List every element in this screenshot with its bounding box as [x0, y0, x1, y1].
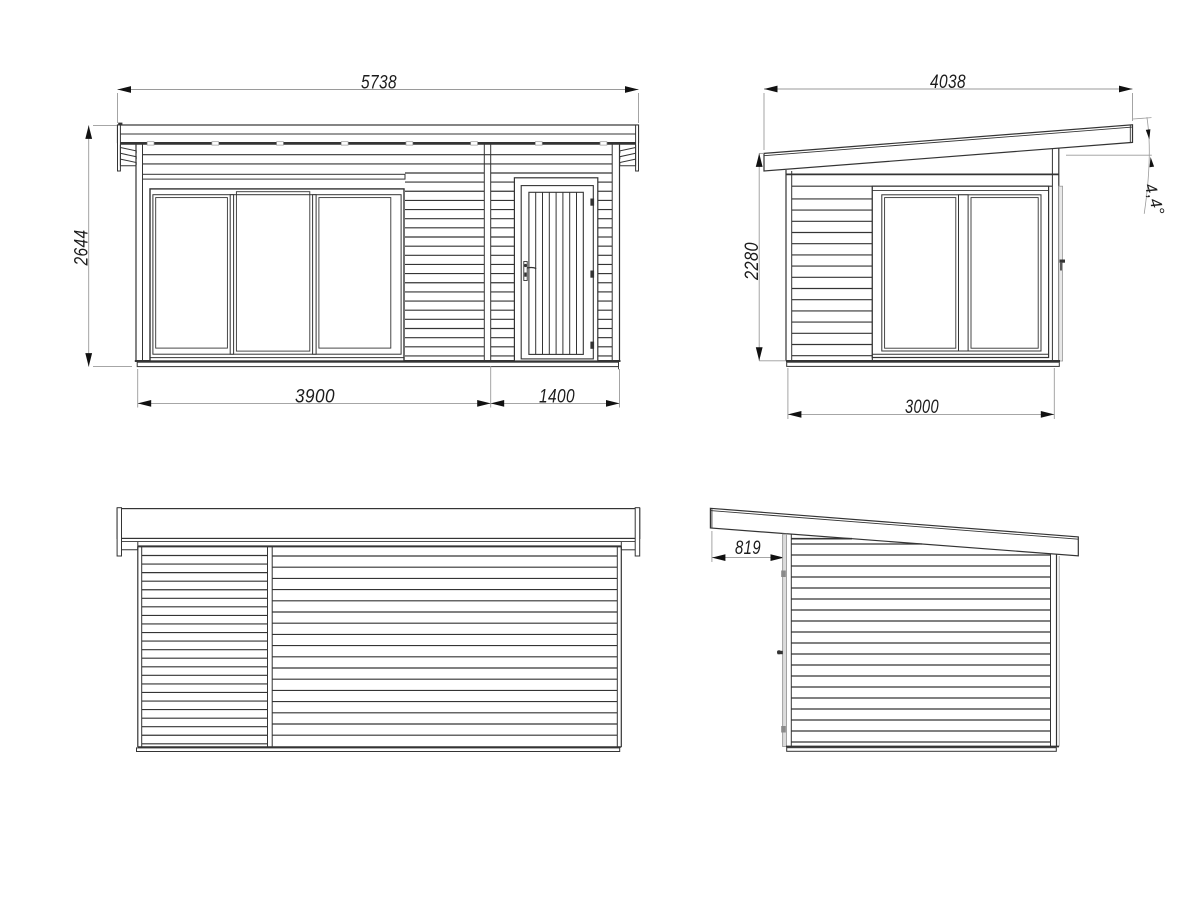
- svg-text:2644: 2644: [72, 230, 93, 267]
- svg-text:3900: 3900: [295, 387, 335, 408]
- svg-text:1400: 1400: [539, 387, 575, 408]
- svg-text:4038: 4038: [930, 72, 966, 93]
- svg-text:819: 819: [735, 538, 761, 559]
- svg-text:2280: 2280: [742, 242, 763, 281]
- svg-text:3000: 3000: [905, 397, 939, 418]
- svg-text:5738: 5738: [361, 73, 397, 94]
